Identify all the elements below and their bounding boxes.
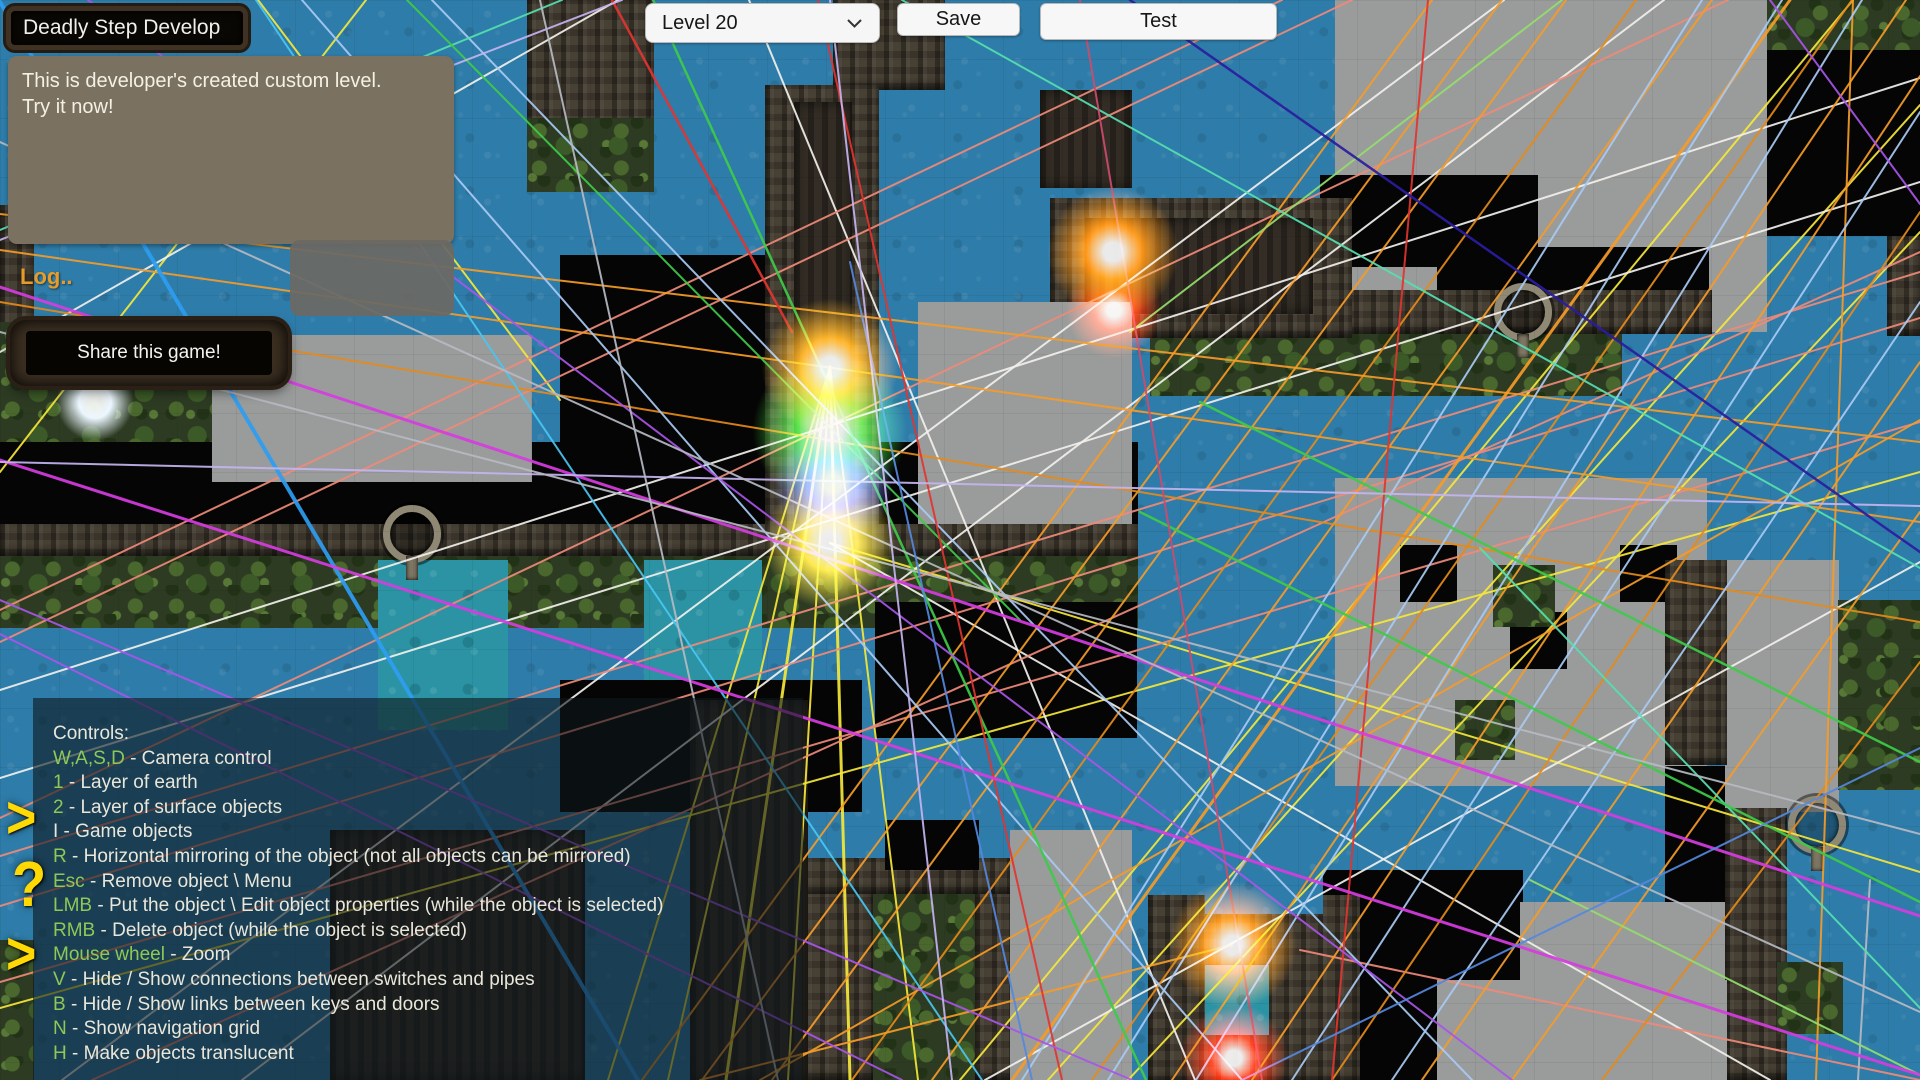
log-button[interactable]: Log.. xyxy=(20,264,73,290)
save-button[interactable]: Save xyxy=(897,3,1020,36)
control-item: R - Horizontal mirroring of the object (… xyxy=(53,845,803,870)
map-tile-jungle xyxy=(1767,0,1920,50)
control-item: LMB - Put the object \ Edit object prope… xyxy=(53,894,803,919)
map-tile-stonedark xyxy=(794,102,852,544)
map-tile-jungle xyxy=(1455,700,1515,760)
map-tile-jungle xyxy=(1838,600,1920,790)
control-key: RMB xyxy=(53,920,95,941)
control-item: I - Game objects xyxy=(53,820,803,845)
map-tile-jungle xyxy=(527,118,654,192)
level-description-box: This is developer's created custom level… xyxy=(8,56,454,244)
control-key: Esc xyxy=(53,871,85,892)
control-key: LMB xyxy=(53,895,92,916)
test-button[interactable]: Test xyxy=(1040,3,1277,40)
control-item: B - Hide / Show links between keys and d… xyxy=(53,993,803,1018)
map-tile-stone xyxy=(1725,808,1787,1080)
control-item: Esc - Remove object \ Menu xyxy=(53,870,803,895)
control-item: W,A,S,D - Camera control xyxy=(53,747,803,772)
map-tile-void xyxy=(1767,50,1920,236)
control-key: B xyxy=(53,994,66,1015)
control-desc: - Zoom xyxy=(165,944,230,965)
control-desc: - Delete object (while the object is sel… xyxy=(95,920,467,941)
map-tile-water xyxy=(1235,396,1620,478)
map-tile-stone xyxy=(0,524,1138,556)
controls-help-panel: Controls: W,A,S,D - Camera control1 - La… xyxy=(33,698,803,1080)
map-tile-void xyxy=(875,602,1137,738)
map-tile-stone xyxy=(803,894,873,1080)
map-tile-stone xyxy=(1887,236,1920,336)
level-description-line: Try it now! xyxy=(22,94,440,120)
share-game-button[interactable]: Share this game! xyxy=(10,320,288,386)
map-tile-ring xyxy=(1494,283,1552,341)
map-tile-jungle xyxy=(1493,565,1555,627)
control-desc: - Show navigation grid xyxy=(67,1018,260,1039)
game-title: Deadly Step Develop xyxy=(23,16,220,40)
arrow-right-icon[interactable]: > xyxy=(6,788,36,848)
level-select-value: Level 20 xyxy=(662,12,738,35)
map-tile-gray xyxy=(1520,902,1725,1080)
control-key: 1 xyxy=(53,772,64,793)
control-desc: - Hide / Show links between keys and doo… xyxy=(66,994,440,1015)
control-desc: - Horizontal mirroring of the object (no… xyxy=(67,846,631,867)
map-tile-ring xyxy=(383,505,441,563)
control-item: V - Hide / Show connections between swit… xyxy=(53,968,803,993)
map-tile-jungle xyxy=(873,894,975,1080)
control-key: N xyxy=(53,1018,67,1039)
control-key: R xyxy=(53,846,67,867)
control-item: H - Make objects translucent xyxy=(53,1042,803,1067)
control-key: 2 xyxy=(53,797,64,818)
chevron-down-icon xyxy=(846,18,863,29)
map-tile-water xyxy=(1205,850,1323,914)
control-key: V xyxy=(53,969,66,990)
control-item: RMB - Delete object (while the object is… xyxy=(53,919,803,944)
control-item: N - Show navigation grid xyxy=(53,1017,803,1042)
map-tile-pool xyxy=(1205,965,1269,1035)
map-tile-gray xyxy=(1010,830,1132,1080)
control-item: Mouse wheel - Zoom xyxy=(53,943,803,968)
level-editor-screen: Deadly Step Develop This is developer's … xyxy=(0,0,1920,1080)
map-tile-stonedark xyxy=(1085,218,1313,314)
control-desc: - Make objects translucent xyxy=(67,1043,294,1064)
control-key: W,A,S,D xyxy=(53,748,125,769)
control-desc: - Layer of surface objects xyxy=(64,797,283,818)
game-title-button[interactable]: Deadly Step Develop xyxy=(6,6,248,50)
control-desc: - Put the object \ Edit object propertie… xyxy=(92,895,663,916)
map-tile-gray xyxy=(1725,560,1839,812)
map-tile-stone xyxy=(527,0,654,132)
control-desc: - Remove object \ Menu xyxy=(85,871,292,892)
level-description-line: This is developer's created custom level… xyxy=(22,68,440,94)
control-item: 2 - Layer of surface objects xyxy=(53,796,803,821)
map-tile-jungle xyxy=(1777,962,1843,1034)
map-tile-jungle xyxy=(1150,334,1622,396)
controls-heading: Controls: xyxy=(53,722,803,747)
arrow-right-icon[interactable]: > xyxy=(6,924,36,984)
question-icon[interactable]: ? xyxy=(12,852,46,916)
control-desc: - Hide / Show connections between switch… xyxy=(66,969,535,990)
map-tile-stonedark xyxy=(1040,90,1132,188)
control-key: H xyxy=(53,1043,67,1064)
level-select[interactable]: Level 20 xyxy=(645,3,880,43)
map-tile-void xyxy=(885,820,979,870)
map-tile-ring xyxy=(1788,796,1846,854)
control-item: 1 - Layer of earth xyxy=(53,771,803,796)
control-key: Mouse wheel xyxy=(53,944,165,965)
map-tile-stone xyxy=(1665,560,1727,765)
control-desc: - Game objects xyxy=(58,821,192,842)
share-game-label: Share this game! xyxy=(26,331,272,375)
panel-fragment xyxy=(290,240,454,316)
map-tile-void xyxy=(1437,247,1709,293)
map-tile-void xyxy=(560,255,772,527)
control-desc: - Camera control xyxy=(125,748,272,769)
map-tile-void xyxy=(1400,545,1457,602)
map-tile-pool xyxy=(644,560,762,690)
control-desc: - Layer of earth xyxy=(64,772,198,793)
